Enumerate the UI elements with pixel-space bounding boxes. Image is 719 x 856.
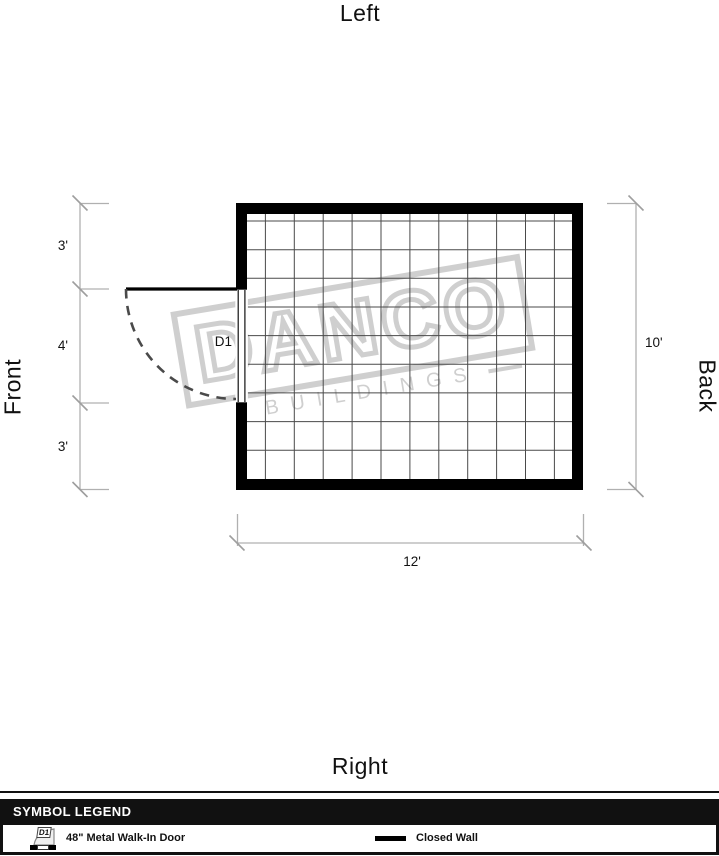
door-tag: D1 [200, 334, 232, 349]
floor-plan-page: DANCO BUILDINGS [0, 0, 719, 856]
orientation-label-left: Front [0, 359, 27, 415]
door-badge: D1 [36, 827, 52, 838]
legend-header: SYMBOL LEGEND [3, 799, 716, 823]
orientation-label-bottom: Right [300, 753, 420, 780]
legend-row: D1 48" Metal Walk-In Door Closed Wall [3, 823, 716, 852]
walk-in-door-icon: D1 [30, 827, 56, 850]
dim-left-segment-1: 3' [40, 238, 68, 253]
dimension-line-right [607, 196, 644, 498]
dim-left-segment-3: 3' [40, 439, 68, 454]
foot-grid [247, 214, 572, 479]
dimension-line-bottom [230, 514, 592, 551]
orientation-label-right: Back [694, 359, 719, 412]
floor-plan-drawing [0, 0, 719, 740]
dim-bottom-total: 12' [397, 554, 427, 569]
legend-wall-label: Closed Wall [416, 825, 478, 852]
dim-left-segment-2: 4' [40, 338, 68, 353]
orientation-label-top: Left [300, 0, 420, 27]
legend-separator-line [0, 791, 719, 793]
dimension-line-left [73, 196, 110, 498]
closed-wall-icon [375, 836, 406, 841]
legend-door-label: 48" Metal Walk-In Door [66, 825, 185, 852]
symbol-legend: SYMBOL LEGEND D1 48" Metal Walk-In Door … [0, 799, 719, 855]
dim-right-total: 10' [645, 335, 663, 350]
door-opening [235, 290, 248, 403]
legend-header-title: SYMBOL LEGEND [3, 804, 131, 819]
